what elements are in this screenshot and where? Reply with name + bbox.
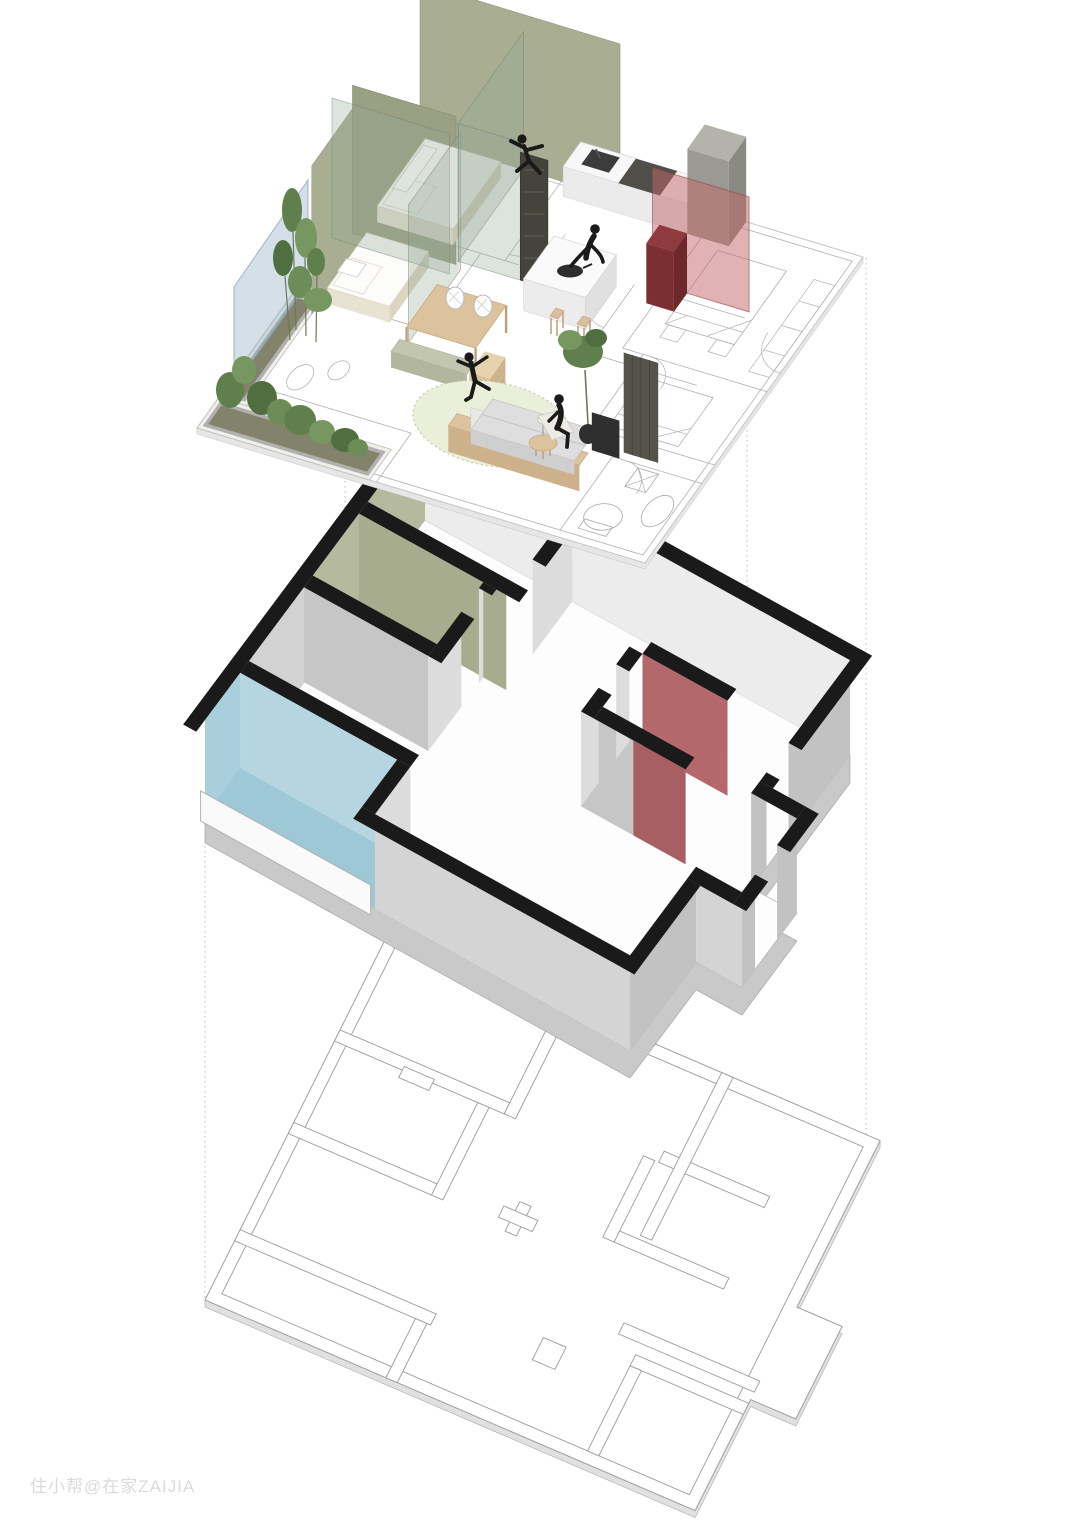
bedroom2-front-stub bbox=[479, 582, 483, 683]
top-furnished-floor-layer bbox=[197, 0, 864, 569]
plant-pot bbox=[579, 424, 597, 444]
exploded-axonometric-diagram: 住小帮@在家ZAIJIA bbox=[0, 0, 1080, 1526]
red-cabinet bbox=[646, 225, 687, 312]
diagram-canvas bbox=[0, 0, 1080, 1526]
folding-screen bbox=[624, 353, 659, 463]
watermark: 住小帮@在家ZAIJIA bbox=[30, 1472, 195, 1497]
dining-chair bbox=[446, 287, 464, 309]
dining-chair bbox=[474, 295, 492, 317]
glass-panel bbox=[458, 123, 520, 280]
bedroom-return-olive-face bbox=[483, 582, 506, 690]
